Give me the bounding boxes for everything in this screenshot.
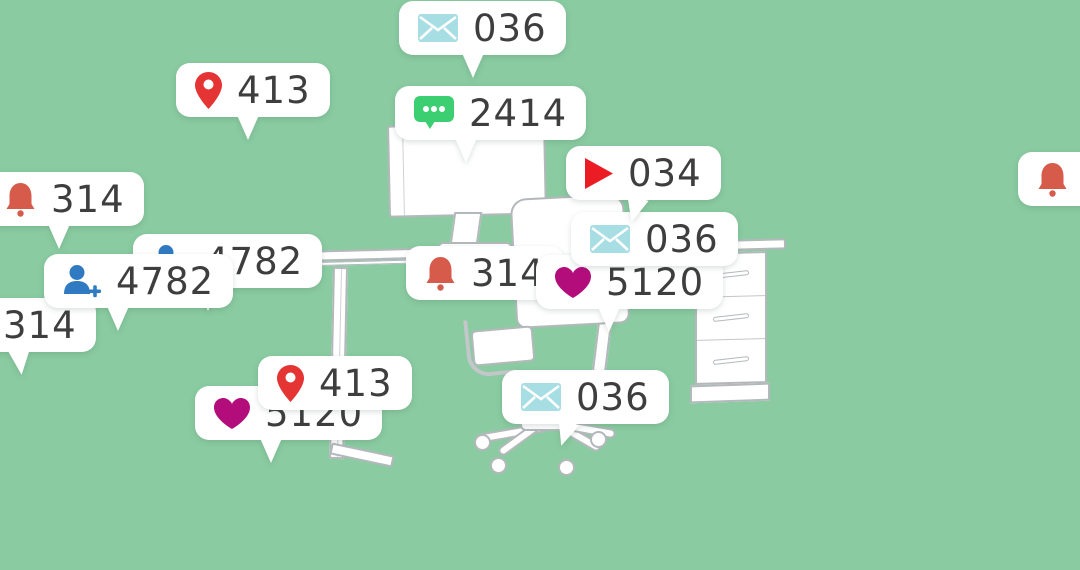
drawer-handle	[713, 356, 749, 365]
notification-count: 314	[471, 255, 545, 292]
heart-icon	[214, 398, 250, 429]
location-pin-icon	[195, 72, 222, 109]
bell-icon	[1037, 162, 1068, 197]
chair-armrest	[463, 316, 515, 378]
drawer	[697, 339, 765, 383]
bubble-tail	[48, 224, 70, 249]
notification-bubble-mail-bottom: 036	[502, 370, 669, 424]
desk-foot	[329, 442, 394, 467]
bubble-tail	[8, 349, 32, 376]
bubble-tail	[462, 53, 484, 78]
notification-bubble-bell-left: 314	[0, 172, 144, 226]
monitor-stand	[450, 212, 483, 245]
chair-caster-wheel	[558, 459, 575, 476]
notification-bubble-bell-right	[1018, 152, 1080, 206]
bubble-tail	[260, 438, 282, 463]
notification-count: 036	[645, 221, 719, 258]
notification-count: 036	[576, 379, 650, 416]
location-pin-icon	[277, 365, 304, 402]
chair-caster-wheel	[490, 457, 507, 474]
mail-icon	[590, 225, 630, 253]
notification-count: 036	[473, 10, 547, 47]
notification-count: 034	[628, 155, 702, 192]
notification-count: 4782	[116, 263, 214, 300]
social-media-notifications-scene: 036 413 2414 034	[0, 0, 1080, 570]
notification-bubble-person-front-left: 4782	[44, 254, 233, 308]
person-add-icon	[63, 265, 101, 298]
play-icon	[585, 158, 613, 189]
bubble-tail	[107, 306, 129, 331]
chat-icon	[414, 96, 454, 130]
bell-icon	[5, 182, 36, 217]
notification-count: 413	[319, 365, 393, 402]
bell-icon	[425, 256, 456, 291]
notification-count: 5120	[606, 264, 704, 301]
chair-caster-wheel	[474, 434, 491, 451]
notification-count: 314	[3, 307, 77, 344]
notification-bubble-pin-top: 413	[176, 63, 330, 117]
drawer-cabinet-plinth	[690, 383, 770, 404]
notification-bubble-chat: 2414	[395, 86, 586, 140]
notification-count: 314	[51, 181, 125, 218]
mail-icon	[521, 383, 561, 411]
bubble-tail	[237, 115, 259, 140]
notification-bubble-play: 034	[566, 146, 721, 200]
notification-bubble-mail-top: 036	[399, 1, 566, 55]
drawer-handle	[713, 313, 749, 322]
heart-icon	[555, 267, 591, 298]
notification-bubble-mail-center: 036	[571, 212, 738, 266]
notification-count: 2414	[469, 95, 567, 132]
notification-count: 413	[237, 72, 311, 109]
bubble-tail	[598, 307, 620, 332]
chair-caster-wheel	[590, 431, 607, 448]
mail-icon	[418, 14, 458, 42]
notification-bubble-pin-bottom: 413	[258, 356, 412, 410]
bubble-tail	[455, 138, 477, 163]
